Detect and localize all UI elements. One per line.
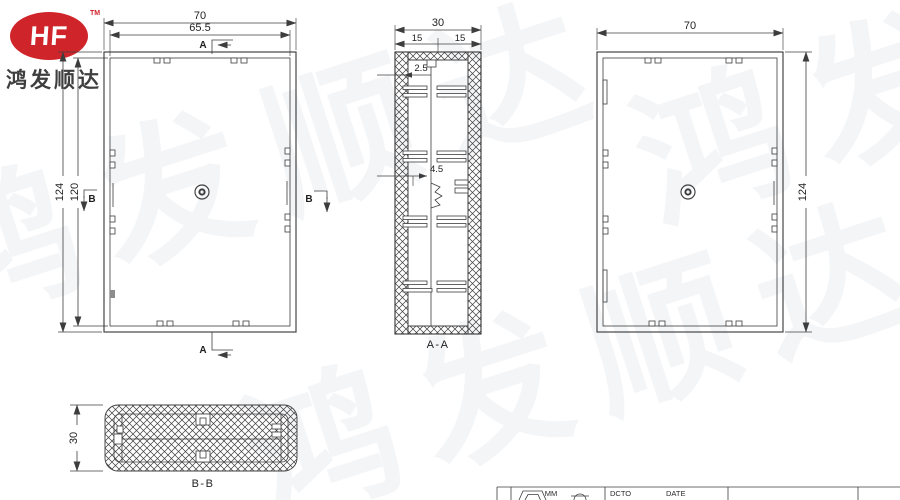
rear-view: 70 124 — [597, 20, 812, 332]
dim-text: 2.5 — [414, 63, 427, 74]
dcto-label: DCTO — [610, 489, 631, 498]
rear-view-bottom-notches — [649, 321, 742, 326]
dim-rear-height-124: 124 — [785, 52, 812, 332]
section-aa-label: A-A — [427, 339, 450, 351]
dim-rear-width-70: 70 — [597, 20, 783, 50]
dim-aa-rib-4-5: 4.5 — [377, 164, 443, 186]
section-bb-left-clip — [117, 426, 123, 433]
rear-view-left-slot-lower — [603, 270, 607, 302]
dim-text: 124 — [54, 183, 66, 201]
section-marker-b-right: B — [305, 191, 327, 212]
dim-text: 124 — [797, 183, 809, 201]
view-symbol-icon — [571, 494, 589, 500]
section-bb-bottom-clip — [196, 451, 210, 462]
dim-text: 4.5 — [430, 164, 443, 175]
section-aa-view: 30 15 15 2.5 4.5 A-A — [377, 17, 481, 351]
dim-text: 120 — [69, 183, 81, 201]
marker-text: B — [305, 194, 312, 205]
center-hole — [195, 185, 209, 199]
dim-front-height-120: 120 — [69, 58, 108, 326]
section-bb-label: B-B — [192, 478, 215, 490]
front-view-corner-tab — [110, 290, 115, 298]
dim-aa-halves-15: 15 15 — [395, 33, 481, 52]
drawing-canvas: 70 65.5 124 120 — [0, 0, 900, 500]
dim-text: 65.5 — [189, 22, 210, 34]
section-aa-hook-clip — [431, 183, 442, 208]
drawing-sheet: 鸿发顺达 鸿发顺达 鸿发顺达 HF TM 鸿发顺达 — [0, 0, 900, 500]
dim-text: 70 — [684, 20, 696, 32]
section-bb-top-clip — [196, 414, 210, 425]
title-block: MM DCTO DATE — [497, 487, 900, 500]
front-view: 70 65.5 124 120 — [54, 10, 327, 356]
dim-text: 15 — [412, 33, 423, 44]
front-view-bottom-notches — [157, 321, 249, 326]
date-label: DATE — [666, 489, 685, 498]
section-bb-view: 30 B-B — [68, 405, 297, 490]
projection-symbol-icon — [519, 491, 546, 500]
section-bb-left-step — [114, 434, 122, 444]
marker-text: A — [199, 40, 206, 51]
section-marker-a-bottom: A — [199, 332, 233, 356]
rear-view-left-slot-upper — [603, 80, 607, 104]
units-label: MM — [545, 489, 558, 498]
front-view-top-notches — [154, 58, 247, 63]
dim-bb-height-30: 30 — [68, 405, 103, 471]
dim-text: 30 — [432, 17, 444, 29]
marker-text: A — [199, 345, 206, 356]
center-hole — [681, 185, 695, 199]
dim-text: 30 — [68, 432, 80, 444]
section-aa-right-clip — [455, 180, 468, 193]
rear-view-top-notches — [645, 58, 742, 63]
dim-text: 15 — [455, 33, 466, 44]
section-marker-b-left: B — [84, 190, 97, 211]
section-aa-top-clip — [427, 60, 436, 67]
dim-text: 70 — [194, 10, 206, 22]
marker-text: B — [88, 194, 95, 205]
